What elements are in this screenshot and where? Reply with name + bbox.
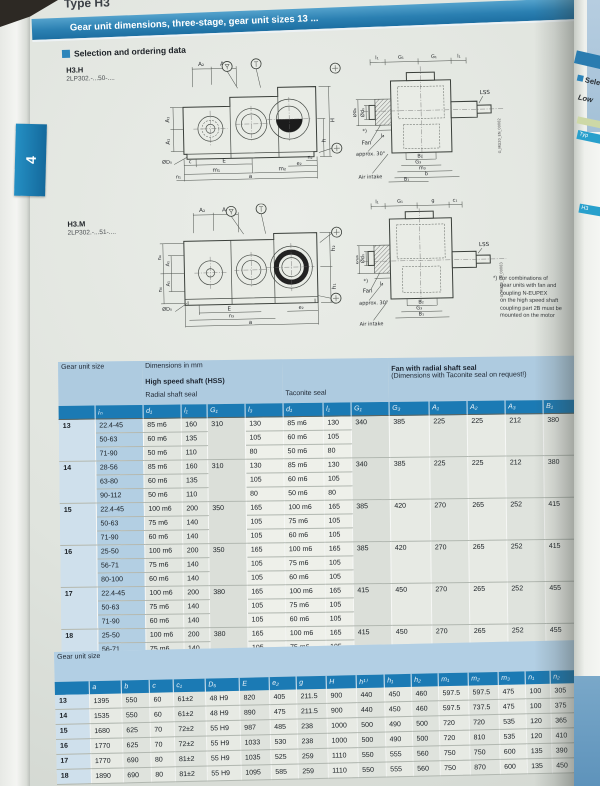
cell: 1095 — [241, 765, 271, 781]
cell: 987 — [240, 720, 270, 736]
cell: 600 — [499, 744, 526, 760]
cell: 490 — [385, 716, 412, 732]
cell: 475 — [269, 704, 296, 720]
cell: 160 — [181, 460, 207, 474]
cell: 17 — [56, 754, 90, 770]
cell: 16 — [56, 739, 90, 755]
page-curl-shadow — [534, 0, 574, 786]
cell: 259 — [297, 748, 327, 764]
cell: 22.4-45 — [95, 418, 143, 433]
section-title: Selection and ordering data — [74, 45, 186, 59]
cell: 165 — [324, 542, 352, 556]
column-header: m₃ — [498, 671, 525, 685]
cell: 265 — [469, 582, 508, 624]
cell: 555 — [385, 746, 412, 762]
cell: 1770 — [90, 753, 122, 769]
dim-label: G₁ — [397, 199, 403, 205]
cell: 110 — [181, 446, 207, 460]
column-header: G₁ — [351, 402, 389, 416]
dim-label: n₁ — [176, 174, 181, 180]
cell: 105 — [245, 431, 283, 445]
cell: 105 — [323, 472, 351, 486]
cell: 85 m6 — [143, 418, 181, 432]
taconite-seal-label: Taconite seal — [285, 390, 326, 397]
cell: 130 — [245, 459, 283, 473]
cell: 900 — [326, 688, 356, 703]
cell: 597.5 — [438, 686, 468, 701]
dim-label: A₁ — [165, 261, 171, 267]
column-header: a — [89, 680, 121, 694]
dim-label: Fan — [362, 140, 372, 146]
cell: 16 — [60, 545, 97, 587]
cell: 690 — [122, 752, 150, 768]
cell: 625 — [122, 722, 150, 738]
cell: 475 — [498, 684, 525, 699]
cell: 105 — [246, 529, 284, 543]
chapter-tab: 4 — [14, 124, 47, 197]
cell: 85 m6 — [283, 458, 323, 472]
cell: 238 — [297, 718, 327, 734]
cell: 130 — [245, 417, 283, 431]
cell: 385 — [389, 457, 430, 499]
cell: 135 — [181, 432, 207, 446]
cell: 105 — [247, 571, 285, 585]
cell: 265 — [468, 498, 507, 540]
drawings-panel: H3.H 2LP302.-...50-.... A₂ A₃ A₁ A₁ H h — [56, 51, 567, 364]
dim-label: m₁ — [212, 168, 220, 174]
cell: 80 — [323, 444, 351, 458]
column-header: b — [121, 680, 149, 694]
cell: 720 — [439, 715, 469, 731]
cell: 420 — [390, 541, 431, 583]
cell: 625 — [122, 737, 150, 753]
cell: 14 — [59, 461, 96, 503]
cell: 130 — [323, 416, 351, 430]
column-header: g — [296, 676, 326, 690]
column-header: D₅ — [205, 678, 239, 692]
cell: 100 m6 — [145, 628, 183, 642]
cell: 1035 — [240, 750, 270, 766]
cell: 60 m6 — [285, 612, 325, 626]
cell: 500 — [412, 716, 439, 732]
cell: 200 — [183, 628, 209, 642]
cell: 75 m6 — [284, 514, 324, 528]
cell: 15 — [60, 503, 97, 545]
cell: 90-112 — [96, 488, 144, 503]
adjacent-table-fragment — [574, 676, 600, 786]
cell: 165 — [247, 627, 285, 641]
cell: 81±2 — [175, 766, 207, 782]
dim-label: Air intake — [360, 321, 384, 327]
cell: 50 m6 — [144, 488, 182, 502]
cell: 22.4-45 — [96, 502, 144, 517]
page-title-bar: Gear unit dimensions, three-stage, gear … — [32, 0, 598, 42]
page-title: Gear unit dimensions, three-stage, gear … — [70, 13, 319, 34]
column-header: h₁ — [384, 674, 411, 688]
cell: 60 m6 — [284, 528, 324, 542]
adjacent-page-edge: Sele Low Typ H3 — [574, 0, 600, 786]
oil-symbol-icon — [226, 206, 244, 234]
h3h-side-view-drawing: l₁ G₁ G₁ l₁ Ød₁ Ød₆ *) LSS Fan — [352, 51, 510, 184]
cell: 259 — [298, 763, 328, 779]
cell: 13 — [55, 694, 89, 709]
cell: 50 m6 — [143, 446, 181, 460]
column-header: l₁ — [181, 404, 207, 418]
cell: 28-56 — [95, 460, 143, 475]
cell: 14 — [55, 709, 89, 725]
h3m-drawing-name: H3.M — [67, 219, 85, 228]
dim-label: B₁ — [404, 177, 410, 183]
page-curl: Sele Low Typ H3 — [534, 0, 600, 786]
cell: 56-71 — [96, 558, 144, 573]
dim-label: c — [189, 159, 192, 165]
cell: 85 m6 — [143, 460, 181, 474]
cell: 105 — [323, 430, 351, 444]
cell: 22.4-45 — [97, 586, 145, 601]
dim-label: h — [322, 138, 328, 142]
cell: 105 — [246, 515, 284, 529]
cell: 1890 — [91, 768, 123, 784]
column-header: G₃ — [389, 401, 429, 415]
cell: 550 — [121, 707, 149, 723]
cell: 75 m6 — [144, 558, 182, 572]
cell: 870 — [470, 759, 500, 775]
page-type-label: Type H3 — [64, 0, 110, 11]
cell: 1395 — [89, 693, 121, 708]
cell: 70 — [150, 737, 174, 753]
cell: 211.5 — [296, 689, 326, 704]
cell: 55 H9 — [207, 765, 241, 781]
cell: 50 m6 — [284, 486, 324, 500]
cell: 737.5 — [468, 699, 498, 715]
cell: 200 — [182, 502, 208, 516]
dim-label: l₁ — [375, 55, 379, 61]
dim-label: Ød₆ — [352, 108, 358, 117]
dim-label: Air intake — [358, 174, 382, 180]
cell: 900 — [326, 703, 356, 719]
cell: 385 — [352, 541, 391, 583]
cell: 535 — [499, 729, 526, 745]
cell: 140 — [183, 600, 209, 614]
cell: 585 — [271, 764, 298, 780]
cell: 75 m6 — [145, 600, 183, 614]
dim-label: approx. 30° — [356, 151, 386, 158]
empty-header-cell — [59, 406, 95, 420]
dim-label: B₁ — [419, 311, 425, 317]
cell: 340 — [351, 457, 390, 499]
dim-label: A₁ — [166, 139, 172, 145]
level-symbol-icon — [320, 227, 342, 242]
dim-label: a — [249, 174, 253, 180]
cell: 17 — [61, 587, 98, 629]
section-heading: Selection and ordering data — [62, 45, 186, 59]
cell: 535 — [499, 714, 526, 730]
cell: 1033 — [240, 735, 270, 751]
dim-label: n₂ — [307, 155, 312, 161]
cell: 270 — [431, 582, 470, 624]
page-stack-margin — [0, 0, 30, 786]
cell: 71-90 — [96, 530, 144, 545]
drain-symbol-icon — [319, 143, 342, 153]
dim-label: l₁ — [457, 54, 461, 60]
cell: 500 — [412, 731, 439, 747]
cell: 75 m6 — [284, 556, 324, 570]
cell: 50 m6 — [283, 444, 323, 458]
cell: 100 m6 — [285, 626, 325, 640]
dim-label: n₄ — [158, 287, 164, 292]
cell: 490 — [385, 731, 412, 747]
cell: 200 — [183, 586, 209, 600]
oil-symbol-icon — [222, 61, 238, 88]
cell: 105 — [247, 613, 285, 627]
cell: 475 — [498, 699, 525, 715]
table-band-header: Gear unit size Dimensions in mm High spe… — [58, 355, 600, 406]
cell: 60 m6 — [145, 614, 183, 628]
cell: 80 — [151, 767, 175, 783]
cell: 60 m6 — [143, 474, 181, 488]
cell: 165 — [325, 626, 353, 640]
cell: 140 — [183, 572, 209, 586]
cell: 100 m6 — [284, 542, 324, 556]
cell: 61±2 — [173, 692, 205, 707]
cell: 55 H9 — [206, 720, 240, 736]
dim-label: b — [425, 171, 428, 177]
cell: 60 — [149, 692, 173, 707]
cell: 560 — [413, 761, 440, 777]
dim-label: m₂ — [278, 166, 286, 172]
cell: 100 m6 — [284, 500, 324, 514]
cell: 60 m6 — [145, 572, 183, 586]
cell: 18 — [57, 769, 91, 785]
dim-label: Ød₁ — [359, 108, 366, 117]
cell: 100 m6 — [144, 544, 182, 558]
dim-label: h₂ — [331, 245, 337, 251]
column-header: A₂ — [467, 401, 505, 415]
cell: 1000 — [327, 718, 357, 734]
cell: 597.5 — [468, 685, 498, 700]
cell: 160 — [181, 418, 207, 432]
dim-label: G_MD20_EN_00082 — [497, 118, 502, 153]
cell: 810 — [469, 729, 499, 745]
cell: 55 H9 — [206, 750, 240, 766]
column-header: G₁ — [207, 404, 245, 418]
cell: 105 — [325, 570, 353, 584]
cell: 100 m6 — [144, 502, 182, 516]
cell: 50-63 — [96, 516, 144, 531]
cell: 1000 — [327, 733, 357, 749]
section-bullet-icon — [62, 50, 70, 58]
cell: 165 — [325, 584, 353, 598]
housing-dimensions-table: Gear unit size abcc₁D₅Ee₂gHh¹⁾h₁h₂m₁m₂m₃… — [54, 639, 600, 785]
column-header: c — [149, 679, 173, 693]
cell: 25-50 — [96, 544, 144, 559]
cell: 70 — [150, 722, 174, 738]
cell: 720 — [439, 730, 469, 746]
cell: 450 — [384, 701, 411, 717]
cell: 50-63 — [97, 600, 145, 615]
cell: 500 — [357, 732, 385, 748]
h3m-side-view-drawing: l₁ G₁ g c₁ Ød₁ Ød₆ *) LSS Fan — [355, 195, 513, 328]
dim-label: A₁ — [166, 281, 172, 287]
photo-backdrop: Type H3 Gear unit dimensions, three-stag… — [0, 0, 600, 786]
dim-label: n₃ — [229, 313, 234, 319]
dim-label: ØD₅ — [162, 306, 172, 313]
adjacent-tab-fragment: Typ — [576, 130, 600, 145]
cell: 225 — [429, 415, 468, 457]
cell: 105 — [246, 557, 284, 571]
cell: 100 m6 — [285, 584, 325, 598]
dim-label: ØD₅ — [162, 159, 172, 166]
cell: 60 m6 — [285, 570, 325, 584]
cell: 720 — [469, 714, 499, 730]
dim-label: *) — [362, 129, 367, 135]
cell: 50-63 — [95, 432, 143, 447]
cell: 165 — [324, 500, 352, 514]
cell: 80 — [245, 445, 283, 459]
cell: 110 — [182, 488, 208, 502]
cell: 460 — [411, 686, 438, 701]
cell: 1110 — [328, 763, 358, 779]
column-header: m₁ — [438, 673, 468, 687]
dim-label: A₁ — [165, 117, 171, 123]
cell: 80 — [324, 486, 352, 500]
drain-symbol-icon — [318, 293, 341, 303]
cell: 80 — [150, 752, 174, 768]
dim-label: LSS — [479, 242, 490, 248]
cell: 165 — [246, 543, 284, 557]
dim-label: a — [249, 320, 253, 326]
column-header: h₂ — [411, 673, 438, 687]
cell: 440 — [356, 702, 384, 718]
cell: 72±2 — [174, 721, 206, 737]
cell: 560 — [412, 746, 439, 762]
column-header: e₂ — [269, 677, 296, 691]
cell: 165 — [247, 585, 285, 599]
cell: 105 — [324, 514, 352, 528]
cell: 140 — [182, 558, 208, 572]
column-header: d₁ — [283, 403, 323, 417]
cell: 55 H9 — [206, 735, 240, 751]
cell: 550 — [357, 747, 385, 763]
cell: 211.5 — [296, 703, 326, 719]
cell: 60 m6 — [144, 530, 182, 544]
cell: 820 — [239, 690, 269, 705]
column-header: h¹⁾ — [356, 675, 384, 689]
column-header: l₁ — [323, 402, 351, 416]
cell: 420 — [390, 499, 431, 541]
cell: 135 — [181, 474, 207, 488]
dim-label: LSS — [480, 90, 491, 96]
cell: 75 m6 — [144, 516, 182, 530]
cell: 60 m6 — [283, 430, 323, 444]
cell: 140 — [182, 530, 208, 544]
h3m-front-view-drawing: A₂ A₃ n₄ A₁ A₁ n₄ h₂ h₁ ØD₅ E e₂ n₃ a — [153, 202, 346, 331]
cell: 385 — [389, 415, 430, 457]
cell: 1770 — [90, 738, 122, 754]
catalog-page: Type H3 Gear unit dimensions, three-stag… — [28, 0, 600, 786]
dim-label: l₁ — [375, 199, 379, 205]
adjacent-tab-fragment: H3 — [578, 204, 600, 218]
cell: 597.5 — [438, 700, 468, 716]
cell: 600 — [500, 759, 527, 775]
cell: 340 — [351, 415, 390, 457]
cell: 485 — [270, 719, 297, 735]
dim-label: n₄ — [157, 255, 163, 260]
cell: 140 — [182, 516, 208, 530]
cell: 100 m6 — [145, 586, 183, 600]
cell: 71-90 — [95, 446, 143, 461]
h3m-order-code: 2LP302.-...51-.... — [68, 229, 117, 237]
breather-symbol-icon — [256, 204, 267, 234]
cell: 270 — [430, 541, 469, 583]
breather-symbol-icon — [251, 59, 262, 88]
cell: 71-90 — [97, 614, 145, 629]
cell: 405 — [269, 690, 296, 705]
cell: 450 — [391, 583, 432, 625]
cell: 105 — [325, 612, 353, 626]
cell: 750 — [439, 745, 469, 761]
cell: 225 — [467, 414, 506, 456]
cell: 530 — [270, 734, 297, 750]
cell: 310 — [207, 417, 246, 459]
cell: 550 — [358, 762, 386, 778]
cell: 265 — [468, 540, 507, 582]
column-header: iₙ — [95, 405, 143, 419]
cell: 105 — [324, 556, 352, 570]
cell: 85 m6 — [283, 416, 323, 430]
taconite-header: Taconite seal — [282, 358, 389, 403]
cell: 750 — [440, 760, 470, 776]
cell: 440 — [356, 688, 384, 703]
cell: 60 — [149, 707, 173, 723]
cell: 1110 — [327, 748, 357, 764]
column-header: H — [326, 675, 356, 689]
cell: 1680 — [90, 723, 122, 739]
cell: 81±2 — [174, 751, 206, 767]
column-header: l₃ — [245, 403, 283, 417]
hss-header: Dimensions in mm High speed shaft (HSS) … — [142, 359, 283, 405]
cell: 238 — [297, 733, 327, 749]
cell: 525 — [270, 749, 297, 765]
cell: 460 — [411, 701, 438, 717]
cell: 225 — [429, 457, 468, 499]
dim-label: e₂ — [297, 161, 302, 167]
cell: 60 m6 — [283, 472, 323, 486]
column-header: c₁ — [173, 679, 205, 693]
dim-label: Ød₆ — [355, 255, 360, 264]
h3h-drawing-name: H3.H — [66, 65, 83, 74]
dim-label: h₁ — [332, 283, 338, 289]
cell: 105 — [245, 473, 283, 487]
cell: 25-50 — [97, 628, 145, 643]
dim-label: G₁ — [398, 55, 404, 61]
cell: 165 — [246, 501, 284, 515]
cell: 225 — [467, 456, 506, 498]
dim-label: e₂ — [299, 305, 304, 311]
cell: 75 m6 — [285, 598, 325, 612]
adjacent-text-fragment: Low — [577, 93, 594, 105]
cell: 15 — [56, 724, 90, 740]
h3h-front-view-drawing: A₂ A₃ A₁ A₁ H h c E n₂ e₂ ØD₅ n₁ m₁ m₂ a — [152, 56, 345, 185]
column-header: d₁ — [143, 405, 181, 419]
hss-label: High speed shaft (HSS) — [145, 375, 279, 386]
cell: 350 — [208, 543, 247, 585]
cell: 80 — [246, 487, 284, 501]
dim-label: *) — [364, 279, 369, 285]
column-header: A₁ — [429, 401, 467, 415]
h3h-order-code: 2LP302.-...50-.... — [66, 75, 115, 83]
cell: 415 — [353, 583, 392, 625]
